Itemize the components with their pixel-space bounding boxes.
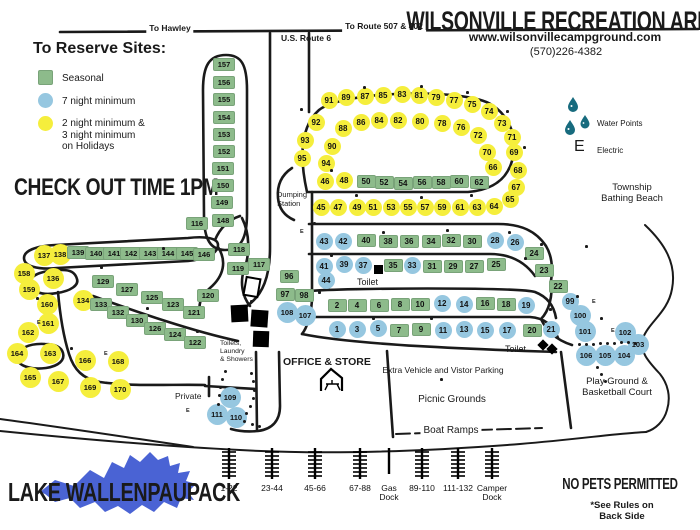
site-63: 63 <box>469 199 486 216</box>
water-point-dot <box>466 91 469 94</box>
electric-mark: E <box>300 229 304 235</box>
site-31: 31 <box>423 260 442 273</box>
water-point-dot <box>540 243 543 246</box>
township-beach-label: Township Bathing Beach <box>601 183 663 205</box>
dock-3: 45-66 <box>306 448 324 508</box>
water-point-dot <box>250 300 253 303</box>
site-162: 162 <box>18 322 39 343</box>
site-7: 7 <box>390 324 409 337</box>
site-88: 88 <box>335 120 352 137</box>
site-44: 44 <box>318 272 335 289</box>
site-37: 37 <box>355 257 372 274</box>
pavilion-icon <box>321 369 342 391</box>
site-10: 10 <box>411 298 430 311</box>
site-109: 109 <box>220 387 241 408</box>
water-point-dot <box>318 291 321 294</box>
site-120: 120 <box>197 289 219 302</box>
site-6: 6 <box>370 299 389 312</box>
water-point-dot <box>446 229 449 232</box>
site-18: 18 <box>497 298 516 311</box>
no-pets-note: NO PETS PERMITTED <box>562 476 677 494</box>
site-83: 83 <box>394 86 411 103</box>
dock-label: Camper Dock <box>468 484 516 503</box>
site-34: 34 <box>422 235 441 248</box>
site-157: 157 <box>213 58 235 71</box>
us-route-6-label: U.S. Route 6 <box>281 34 331 44</box>
site-47: 47 <box>330 199 347 216</box>
site-80: 80 <box>412 113 429 130</box>
site-75: 75 <box>464 96 481 113</box>
water-point-dot <box>330 169 333 172</box>
toilet-right-label: Toilet <box>505 344 526 354</box>
site-36: 36 <box>400 235 419 248</box>
water-point-dot <box>36 297 39 300</box>
electric-mark: E <box>611 328 615 334</box>
site-74: 74 <box>481 103 498 120</box>
site-3: 3 <box>349 321 366 338</box>
electric-mark: E <box>104 351 108 357</box>
site-92: 92 <box>308 114 325 131</box>
water-point-dot <box>420 196 423 199</box>
electric-mark: E <box>186 408 190 414</box>
to-hawley-label: To Hawley <box>146 24 193 34</box>
site-25: 25 <box>487 258 506 271</box>
site-58: 58 <box>432 176 451 189</box>
site-11: 11 <box>435 322 452 339</box>
dock-label: 23-44 <box>248 484 296 493</box>
water-point-dot <box>524 257 527 260</box>
water-point-dot <box>372 317 375 320</box>
site-146: 146 <box>193 248 215 261</box>
site-107: 107 <box>295 305 316 326</box>
site-14: 14 <box>456 296 473 313</box>
electric-label: Electric <box>597 146 623 155</box>
seven-night-swatch <box>38 93 53 108</box>
site-48: 48 <box>336 172 353 189</box>
site-60: 60 <box>450 175 469 188</box>
two-night-label: 2 night minimum & 3 night minimum on Hol… <box>62 118 145 153</box>
private-label: Private <box>175 392 201 402</box>
site-70: 70 <box>479 144 496 161</box>
water-point-dot <box>196 330 199 333</box>
checkout-note: CHECK OUT TIME 1PM <box>14 174 218 202</box>
site-32: 32 <box>442 234 461 247</box>
water-point-dot <box>330 254 333 257</box>
site-93: 93 <box>297 132 314 149</box>
water-point-dot <box>363 86 366 89</box>
site-5: 5 <box>370 320 387 337</box>
site-79: 79 <box>428 89 445 106</box>
site-110: 110 <box>226 407 247 428</box>
site-81: 81 <box>411 87 428 104</box>
site-69: 69 <box>506 144 523 161</box>
site-170: 170 <box>110 379 131 400</box>
site-116: 116 <box>186 217 208 230</box>
site-91: 91 <box>321 92 338 109</box>
phone: (570)226-4382 <box>530 46 602 59</box>
site-124: 124 <box>164 328 186 341</box>
site-86: 86 <box>353 114 370 131</box>
dock-5: Gas Dock <box>380 448 398 508</box>
site-54: 54 <box>394 177 413 190</box>
dock-label: 45-66 <box>291 484 339 493</box>
site-127: 127 <box>116 283 138 296</box>
site-30: 30 <box>463 235 482 248</box>
site-123: 123 <box>162 298 184 311</box>
water-point-dot <box>313 222 316 225</box>
electric-mark: E <box>592 299 596 305</box>
water-point-dot <box>162 247 165 250</box>
water-point-dot <box>300 108 303 111</box>
site-152: 152 <box>213 145 235 158</box>
site-122: 122 <box>184 336 206 349</box>
site-167: 167 <box>48 371 69 392</box>
site-16: 16 <box>476 297 495 310</box>
site-43: 43 <box>316 233 333 250</box>
site-62: 62 <box>470 176 489 189</box>
toilet-left-label: Toilet <box>357 277 378 287</box>
dock-6: 89-110 <box>413 448 431 508</box>
water-point-dot <box>146 307 149 310</box>
site-78: 78 <box>434 115 451 132</box>
seasonal-swatch <box>38 70 53 85</box>
site-24: 24 <box>525 247 544 260</box>
water-point-dot <box>549 308 552 311</box>
dumping-station-label: Dumping Station <box>277 191 307 208</box>
water-point-dot <box>506 110 509 113</box>
site-82: 82 <box>390 112 407 129</box>
toilets-laundry-label: Toilets, Laundry & Showers <box>220 340 253 363</box>
water-point-dot <box>523 146 526 149</box>
site-12: 12 <box>434 295 451 312</box>
electric-mark: E <box>37 320 41 326</box>
reserve-legend-title: To Reserve Sites: <box>33 40 166 58</box>
site-49: 49 <box>349 199 366 216</box>
office-store-label: OFFICE & STORE <box>283 356 371 368</box>
site-53: 53 <box>383 199 400 216</box>
site-87: 87 <box>357 88 374 105</box>
site-39: 39 <box>336 256 353 273</box>
water-point-dot <box>470 194 473 197</box>
water-point-dot <box>100 266 103 269</box>
site-17: 17 <box>499 322 516 339</box>
site-150: 150 <box>212 179 234 192</box>
site-46: 46 <box>317 173 334 190</box>
site-163: 163 <box>40 343 61 364</box>
site-26: 26 <box>507 234 524 251</box>
site-38: 38 <box>379 235 398 248</box>
site-84: 84 <box>371 112 388 129</box>
site-33: 33 <box>404 257 421 274</box>
water-point-dot <box>576 295 579 298</box>
see-rules-note: *See Rules on Back Side <box>583 501 661 523</box>
seven-night-label: 7 night minimum <box>62 96 135 108</box>
site-77: 77 <box>446 92 463 109</box>
site-23: 23 <box>535 264 554 277</box>
site-1: 1 <box>329 321 346 338</box>
site-71: 71 <box>504 129 521 146</box>
site-57: 57 <box>417 199 434 216</box>
site-97: 97 <box>276 288 295 301</box>
site-121: 121 <box>183 306 205 319</box>
site-55: 55 <box>400 199 417 216</box>
dock-8: Camper Dock <box>483 448 501 508</box>
site-56: 56 <box>413 176 432 189</box>
site-51: 51 <box>365 199 382 216</box>
water-point-dot <box>355 194 358 197</box>
site-45: 45 <box>313 199 330 216</box>
site-111: 111 <box>207 404 228 425</box>
water-point-dot <box>585 245 588 248</box>
site-8: 8 <box>391 298 410 311</box>
dock-label: 1-22 <box>205 484 253 493</box>
site-165: 165 <box>20 367 41 388</box>
site-95: 95 <box>294 150 311 167</box>
site-104: 104 <box>614 345 635 366</box>
site-89: 89 <box>338 89 355 106</box>
site-168: 168 <box>108 351 129 372</box>
electric-symbol: E <box>574 138 585 156</box>
site-4: 4 <box>348 299 367 312</box>
site-101: 101 <box>575 321 596 342</box>
extra-parking-label: Extra Vehicle and Vistor Parking <box>382 366 503 376</box>
site-13: 13 <box>456 321 473 338</box>
site-105: 105 <box>595 345 616 366</box>
seasonal-label: Seasonal <box>62 73 104 85</box>
site-90: 90 <box>324 138 341 155</box>
site-155: 155 <box>213 93 235 106</box>
site-98: 98 <box>295 289 314 302</box>
site-169: 169 <box>80 377 101 398</box>
site-42: 42 <box>335 233 352 250</box>
site-66: 66 <box>485 159 502 176</box>
site-21: 21 <box>543 321 560 338</box>
site-153: 153 <box>213 128 235 141</box>
site-72: 72 <box>470 127 487 144</box>
site-27: 27 <box>465 260 484 273</box>
site-20: 20 <box>523 324 542 337</box>
site-156: 156 <box>213 76 235 89</box>
site-106: 106 <box>576 345 597 366</box>
site-85: 85 <box>375 87 392 104</box>
site-154: 154 <box>213 111 235 124</box>
site-164: 164 <box>7 343 28 364</box>
site-148: 148 <box>212 214 234 227</box>
site-125: 125 <box>141 291 163 304</box>
site-50: 50 <box>357 175 376 188</box>
website: www.wilsonvillecampground.com <box>469 31 661 45</box>
site-15: 15 <box>477 322 494 339</box>
site-35: 35 <box>384 259 403 272</box>
picnic-grounds-label: Picnic Grounds <box>418 394 486 406</box>
site-28: 28 <box>487 232 504 249</box>
water-point-dot <box>440 378 443 381</box>
site-160: 160 <box>37 294 58 315</box>
water-point-dot <box>70 347 73 350</box>
site-151: 151 <box>212 162 234 175</box>
site-9: 9 <box>412 323 431 336</box>
boat-ramps-label: Boat Ramps <box>420 425 481 437</box>
site-22: 22 <box>549 280 568 293</box>
water-drops-icon <box>565 97 590 135</box>
site-52: 52 <box>375 176 394 189</box>
two-night-swatch <box>38 116 53 131</box>
site-59: 59 <box>434 199 451 216</box>
site-64: 64 <box>486 198 503 215</box>
site-29: 29 <box>444 260 463 273</box>
toilet-left-icon <box>374 265 383 274</box>
site-76: 76 <box>453 119 470 136</box>
site-96: 96 <box>280 270 299 283</box>
site-68: 68 <box>510 162 527 179</box>
dock-2: 23-44 <box>263 448 281 508</box>
water-point-dot <box>508 231 511 234</box>
dock-1: 1-22 <box>220 448 238 508</box>
site-118: 118 <box>228 243 250 256</box>
dock-7: 111-132 <box>449 448 467 508</box>
water-point-dot <box>420 85 423 88</box>
site-126: 126 <box>144 322 166 335</box>
site-166: 166 <box>75 350 96 371</box>
site-2: 2 <box>328 299 347 312</box>
site-119: 119 <box>227 262 249 275</box>
site-65: 65 <box>502 191 519 208</box>
site-117: 117 <box>248 258 270 271</box>
water-point-dot <box>600 317 603 320</box>
site-19: 19 <box>518 297 535 314</box>
playground-label: Play Ground & Basketball Court <box>582 377 652 399</box>
water-points-label: Water Points <box>597 119 643 128</box>
site-129: 129 <box>92 275 114 288</box>
site-40: 40 <box>357 234 376 247</box>
site-136: 136 <box>43 268 64 289</box>
water-point-dot <box>430 317 433 320</box>
site-149: 149 <box>211 196 233 209</box>
site-61: 61 <box>452 199 469 216</box>
water-point-dot <box>382 231 385 234</box>
campground-map: To Reserve Sites: Seasonal 7 night minim… <box>0 0 700 530</box>
